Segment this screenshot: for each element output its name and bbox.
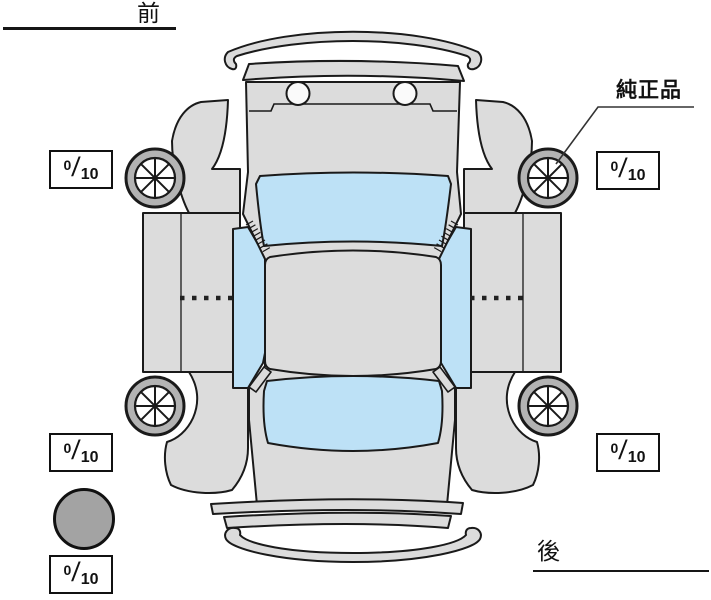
- left-headlight-circle: [287, 82, 310, 105]
- car-top-view-drawing: [0, 0, 711, 600]
- rear-label: 後: [537, 540, 560, 563]
- tread-separator: /: [618, 153, 629, 184]
- tread-value: 0: [610, 440, 618, 456]
- rear-window: [264, 376, 443, 451]
- front-label: 前: [137, 2, 160, 25]
- front-underline: [3, 27, 176, 30]
- tread-value: 0: [63, 157, 71, 173]
- roof-panel: [265, 251, 441, 377]
- spare-tire-circle: [55, 490, 114, 549]
- windshield: [256, 173, 451, 247]
- wheel-spokes: [135, 158, 175, 198]
- tread-separator: /: [618, 435, 629, 466]
- wheel-spokes: [528, 386, 568, 426]
- tread-box-spare: 0 / 10: [49, 555, 113, 594]
- rear-right-wheel: [519, 377, 577, 435]
- tread-max: 10: [81, 449, 99, 467]
- rear-left-wheel: [126, 377, 184, 435]
- rear-underline: [533, 570, 709, 572]
- trunk-trim-band: [211, 499, 463, 514]
- tread-box-rear-left: 0 / 10: [49, 433, 113, 472]
- tread-max: 10: [81, 571, 99, 589]
- right-headlight-circle: [394, 82, 417, 105]
- rear-bumper-band: [224, 513, 451, 528]
- tread-value: 0: [610, 158, 618, 174]
- tread-max: 10: [81, 166, 99, 184]
- wheel-spokes: [528, 158, 568, 198]
- tread-box-front-right: 0 / 10: [596, 151, 660, 190]
- tread-separator: /: [71, 152, 82, 183]
- front-left-wheel: [126, 149, 184, 207]
- vehicle-inspection-diagram: 前 後 純正品 0 / 10 0 / 10 0 / 10 0 / 10 0 / …: [0, 0, 711, 600]
- tread-box-rear-right: 0 / 10: [596, 433, 660, 472]
- tread-box-front-left: 0 / 10: [49, 150, 113, 189]
- tread-value: 0: [63, 440, 71, 456]
- front-right-wheel: [519, 149, 577, 207]
- rear-bumper: [225, 528, 481, 562]
- tread-max: 10: [628, 449, 646, 467]
- cowl-panel: [243, 61, 464, 81]
- left-door-panel: [143, 213, 240, 372]
- right-door-panel: [464, 213, 561, 372]
- tread-separator: /: [71, 557, 82, 588]
- genuine-parts-annotation: 純正品: [616, 80, 682, 101]
- tread-value: 0: [63, 562, 71, 578]
- tread-max: 10: [628, 167, 646, 185]
- front-right-fender: [464, 100, 532, 213]
- wheel-spokes: [135, 386, 175, 426]
- front-left-fender: [172, 100, 240, 213]
- tread-separator: /: [71, 435, 82, 466]
- rear-bumper-assembly: [211, 499, 481, 562]
